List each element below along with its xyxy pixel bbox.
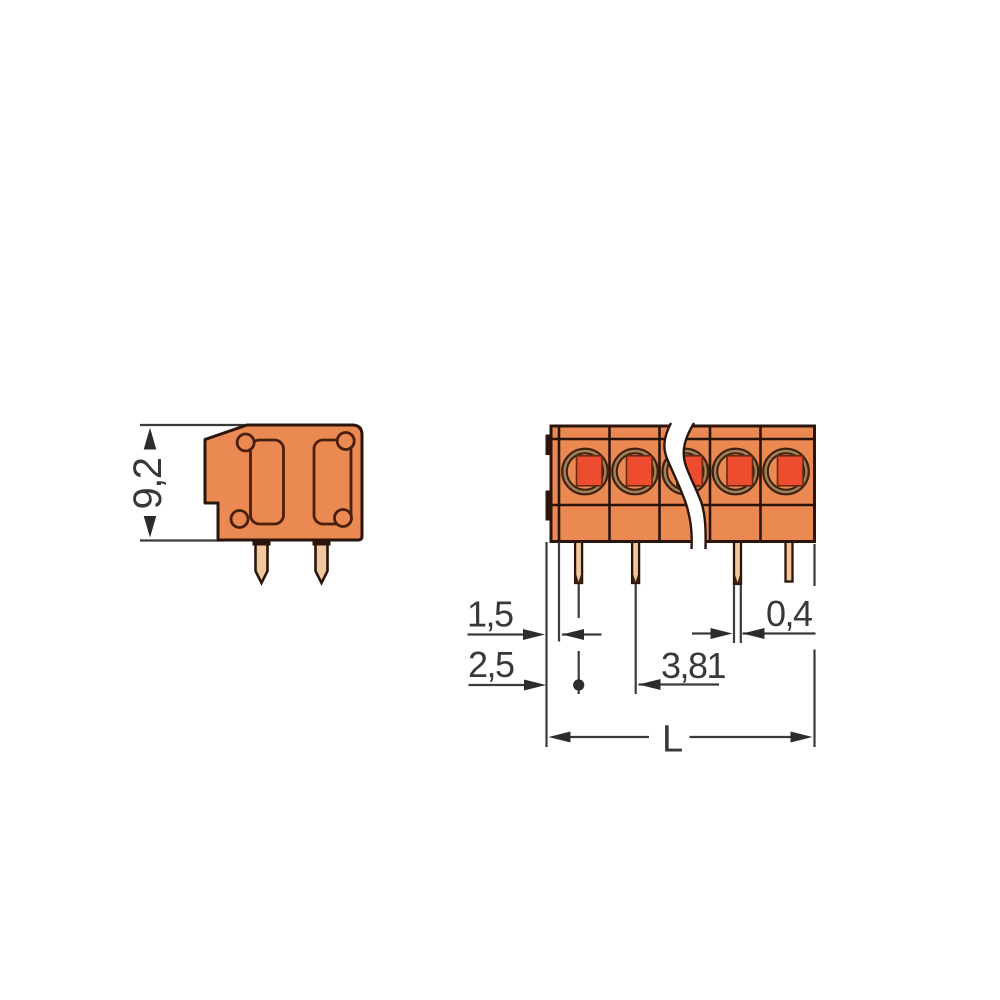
svg-text:9,2: 9,2 xyxy=(126,458,170,509)
svg-text:2,5: 2,5 xyxy=(468,644,514,685)
svg-text:1,5: 1,5 xyxy=(467,594,513,635)
svg-text:L: L xyxy=(662,719,683,761)
svg-text:3,81: 3,81 xyxy=(661,645,726,686)
svg-text:0,4: 0,4 xyxy=(766,593,812,634)
